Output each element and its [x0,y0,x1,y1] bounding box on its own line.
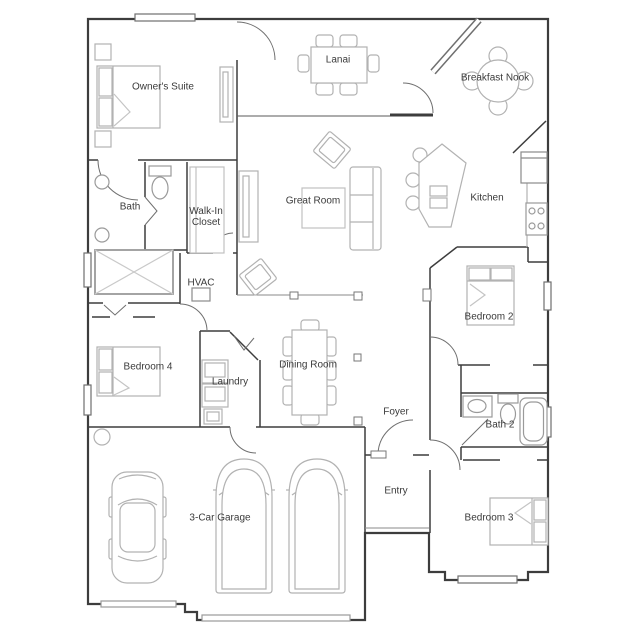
column-post [290,292,298,299]
toilet-icon [149,166,171,199]
bathtub-icon [520,398,547,445]
room-label-bedroom-2: Bedroom 2 [465,312,514,323]
chair-icon [340,35,357,47]
window-bath-icon [84,253,91,287]
room-label-foyer: Foyer [383,407,409,418]
door-bedroom4-icon [180,304,207,331]
stove-icon [526,203,547,235]
door-wc-bifold-icon [145,197,157,225]
room-label-laundry: Laundry [212,377,248,388]
coffee-table-icon [302,188,345,228]
hall-door-threshold [423,289,431,301]
sink-icon [463,396,492,417]
hvac-unit-icon [192,288,210,301]
room-label-bedroom-3: Bedroom 3 [465,513,514,524]
chair-icon [368,55,379,72]
room-label-great-room: Great Room [286,196,340,207]
chair-icon [316,83,333,95]
chair-icon [298,55,309,72]
chair-icon [301,320,319,331]
stool-icon [406,196,420,210]
window-bedroom4-icon [84,385,91,415]
chair-icon [340,83,357,95]
garage-doors [101,601,350,621]
room-label-walk-in-closet: Walk-In Closet [181,206,231,228]
door-bedroom3-icon [430,440,460,470]
window-bedroom3-icon [458,576,517,583]
door-linen-bifold-icon [104,305,126,315]
suv-icon [213,459,275,593]
refrigerator-icon [521,152,547,183]
kitchen-island-icon [406,144,466,227]
garage-door-single-icon [101,601,176,607]
room-label-kitchen: Kitchen [470,193,503,204]
armchair-icon [239,258,277,296]
floor-plan: Owner's Suite Lanai Breakfast Nook Bath … [0,0,639,639]
bed-owners-suite-icon [97,66,160,128]
door-bedroom2-icon [430,337,458,365]
chair-icon [316,35,333,47]
dresser-icon [220,67,233,122]
door-owners-suite-icon [237,22,275,60]
room-label-hvac: HVAC [187,278,214,289]
room-label-dining-room: Dining Room [279,360,337,371]
room-label-lanai: Lanai [326,55,350,66]
media-console-icon [239,171,258,242]
sink-icon [95,175,109,242]
window-owners-suite-icon [135,14,195,21]
room-label-breakfast-nook: Breakfast Nook [461,73,529,84]
dining-table-icon [283,320,336,425]
door-bath2-icon [462,419,488,445]
room-label-bath: Bath [120,202,141,213]
shower-icon [95,250,173,294]
room-label-entry: Entry [384,486,407,497]
column-post [354,292,362,300]
stool-icon [406,173,420,187]
sofa-icon [350,167,381,250]
room-label-bedroom-4: Bedroom 4 [124,362,173,373]
room-label-bath-2: Bath 2 [486,420,515,431]
door-garage-icon [230,427,256,453]
column-post [354,417,362,425]
chair-icon [301,414,319,425]
front-door-threshold [371,451,386,458]
garage-door-double-icon [202,615,350,621]
car-icon [109,472,166,583]
armchair-icon [313,131,351,169]
door-lanai-icon [403,83,433,113]
water-heater-icon [94,429,110,445]
window-bedroom2-icon [544,282,551,310]
room-label-garage: 3-Car Garage [189,513,250,524]
water-heater-platform-icon [204,409,222,424]
room-label-owners-suite: Owner's Suite [132,82,194,93]
door-front-icon [378,420,413,455]
floor-plan-drawing [0,0,639,639]
column-post [354,354,361,361]
suv-icon [286,459,348,593]
